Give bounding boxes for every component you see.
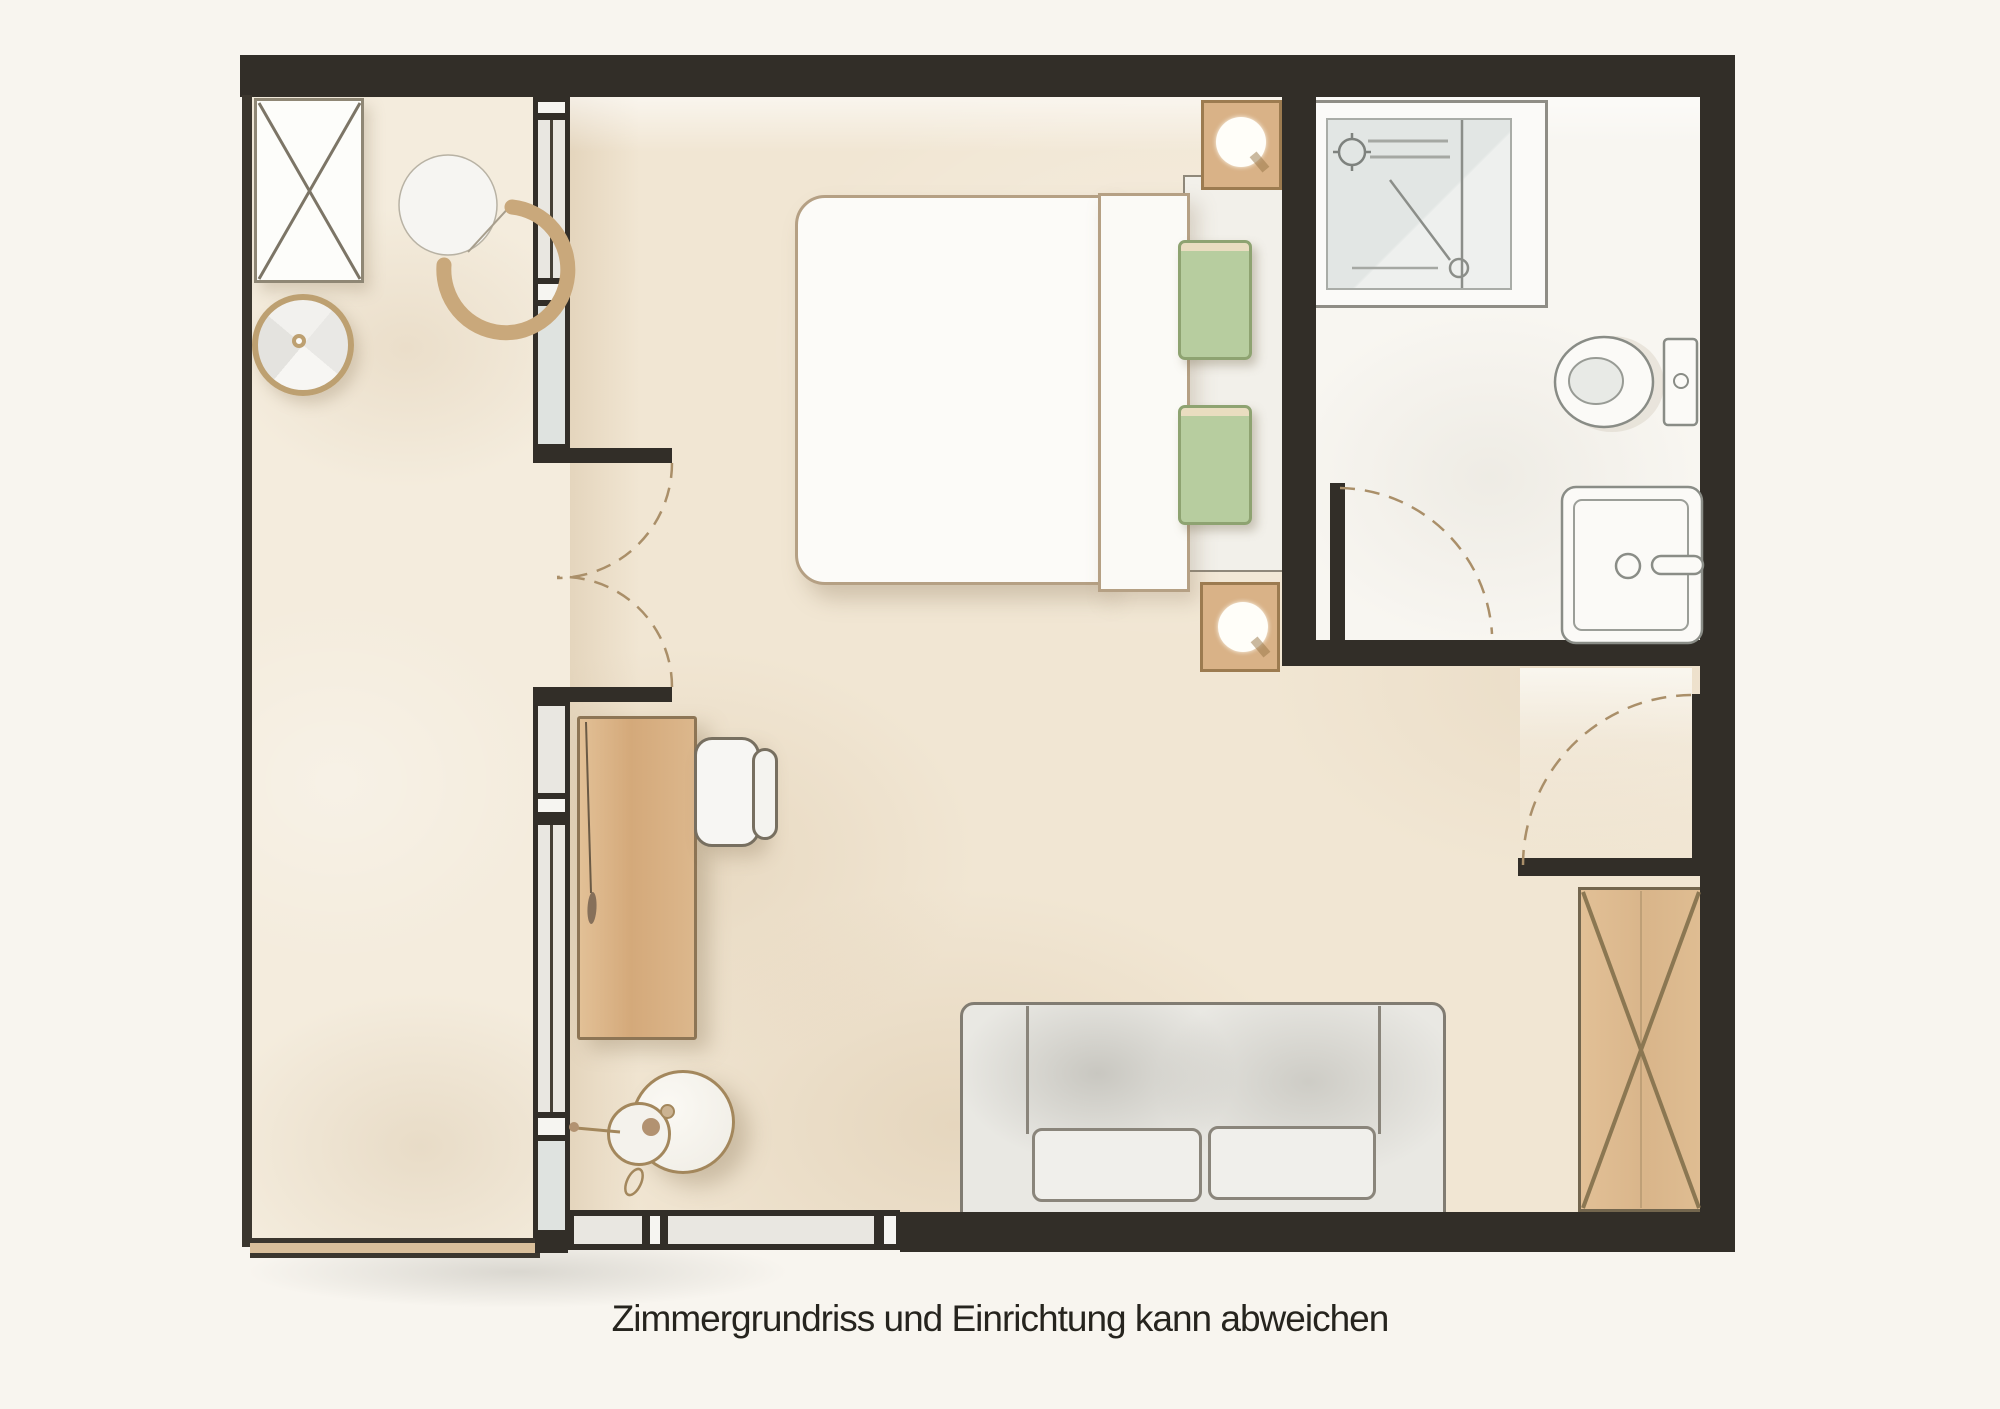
- wall-top: [240, 55, 1735, 97]
- desk-chair-backrest: [752, 748, 778, 840]
- caption-text: Zimmergrundriss und Einrichtung kann abw…: [0, 1298, 2000, 1340]
- sofa-cushion-left: [1032, 1128, 1202, 1202]
- wall-bathroom-divider: [1282, 95, 1316, 663]
- wall-right: [1700, 55, 1735, 1250]
- entry-niche-floor: [1520, 668, 1692, 858]
- wardrobe-entry: [254, 98, 364, 283]
- wall-left-window: [242, 95, 252, 1247]
- wall-niche-stub: [1518, 858, 1735, 876]
- floor-lamp-joint: [660, 1104, 675, 1119]
- partition-pane: [538, 306, 565, 444]
- shower-tray: [1326, 118, 1512, 290]
- window-pane: [574, 1216, 642, 1244]
- bathroom-door-leaf: [1330, 483, 1345, 643]
- window-pane: [650, 1216, 660, 1244]
- partition-stub-lower: [533, 687, 672, 702]
- bed-sheet-fold: [1098, 193, 1190, 592]
- wall-niche-right: [1692, 694, 1703, 866]
- partition-lower: [533, 702, 570, 1238]
- partition-mullion: [550, 120, 553, 278]
- side-table-center-dot: [292, 334, 306, 348]
- partition-pane: [538, 825, 565, 1112]
- partition-pane: [538, 120, 565, 278]
- wardrobe-bedroom: [1578, 887, 1703, 1212]
- partition-pane: [538, 284, 565, 300]
- partition-pane: [538, 799, 565, 812]
- partition-mullion: [550, 825, 553, 1112]
- doorway-floor: [533, 463, 570, 687]
- pillow-top: [1178, 240, 1252, 360]
- partition-stub-upper: [533, 448, 672, 463]
- wall-bottom: [900, 1212, 1735, 1252]
- window-band-bottom: [568, 1210, 900, 1250]
- sofa-arm-line-right: [1378, 1006, 1381, 1134]
- desk: [577, 716, 697, 1040]
- page: { "caption": { "text": "Zimmergrundriss …: [0, 0, 2000, 1409]
- wall-bottom-window-sill: [250, 1238, 540, 1258]
- floor-lamp-bulb: [642, 1118, 660, 1136]
- bed-duvet: [795, 195, 1105, 585]
- partition-pane: [538, 1141, 565, 1230]
- window-pane: [668, 1216, 874, 1244]
- partition-pane: [538, 102, 565, 113]
- partition-pane: [538, 1118, 565, 1135]
- pillow-bottom: [1178, 405, 1252, 525]
- desk-chair-seat: [694, 737, 760, 847]
- sofa-cushion-right: [1208, 1126, 1376, 1200]
- partition-upper: [533, 97, 570, 448]
- window-pane: [884, 1216, 896, 1244]
- partition-pane: [538, 706, 565, 793]
- wall-bathroom-bottom: [1282, 640, 1703, 666]
- sofa-arm-line-left: [1026, 1006, 1029, 1134]
